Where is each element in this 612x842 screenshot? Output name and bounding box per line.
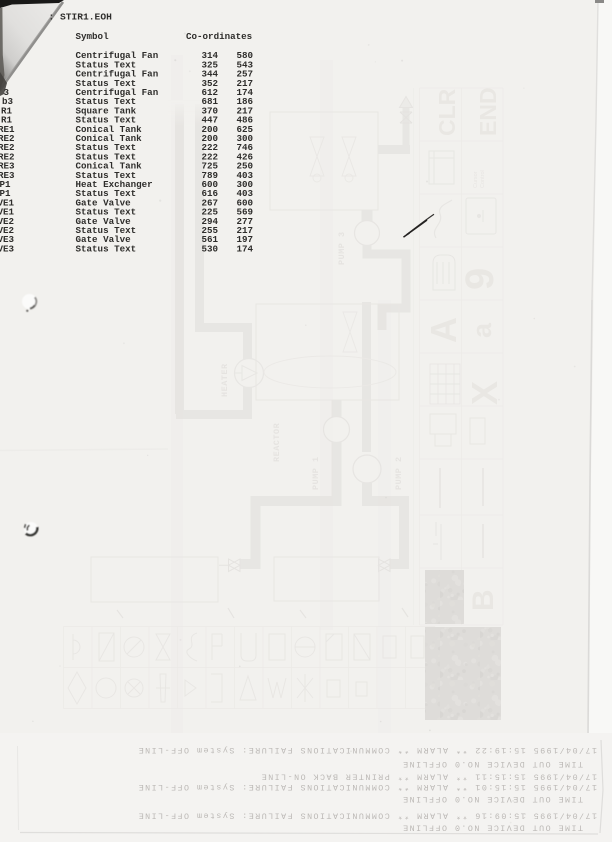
svg-text:530: 530 [202, 243, 219, 254]
svg-text:REACTOR: REACTOR [272, 422, 282, 462]
svg-text:Co-ordinates: Co-ordinates [186, 31, 252, 42]
svg-text:a: a [467, 322, 497, 338]
svg-text:17/04/1995 15:15:11 ** AL: 17/04/1995 15:15:11 ** ALARM ** PRINTER … [260, 772, 597, 782]
svg-text:HEATER: HEATER [220, 363, 230, 397]
svg-text:TIME OUT DEVICE NO.0 OFFLINE: TIME OUT DEVICE NO.0 OFFLINE [402, 759, 583, 769]
svg-text:Symbol: Symbol [76, 31, 110, 42]
svg-text:TIME OUT DEVICE NO.0 OFFLINE: TIME OUT DEVICE NO.0 OFFLINE [402, 823, 583, 833]
svg-text:17/04/1995 15:15:01 ** AL: 17/04/1995 15:15:01 ** ALARM ** COMMUNIC… [137, 782, 597, 792]
svg-text:Cursor: Cursor [473, 171, 479, 188]
svg-text:174: 174 [237, 243, 254, 254]
svg-text:17/04/1995 15:09:16 ** AL: 17/04/1995 15:09:16 ** ALARM ** COMMUNIC… [137, 811, 597, 821]
svg-text:Control: Control [480, 170, 486, 188]
svg-text:END: END [475, 87, 501, 136]
svg-text:PUMP 2: PUMP 2 [394, 456, 404, 490]
svg-text:9: 9 [458, 268, 502, 290]
svg-text:A: A [423, 317, 464, 343]
svg-text:TIME OUT DEVICE NO.0 OFFLINE: TIME OUT DEVICE NO.0 OFFLINE [402, 794, 583, 804]
svg-text:PUMP 3: PUMP 3 [337, 231, 347, 265]
svg-text:Status Text: Status Text [76, 243, 137, 254]
svg-text:: STIR1.EOH: : STIR1.EOH [49, 12, 113, 23]
svg-text:CLR: CLR [434, 88, 460, 136]
svg-text:VE3: VE3 [0, 243, 14, 254]
svg-text:X: X [464, 381, 505, 405]
svg-text:B: B [467, 589, 500, 611]
svg-text:PUMP 1: PUMP 1 [311, 456, 321, 490]
svg-text:17/04/1995 15:19:22 ** AL: 17/04/1995 15:19:22 ** ALARM ** COMMUNIC… [137, 745, 597, 755]
